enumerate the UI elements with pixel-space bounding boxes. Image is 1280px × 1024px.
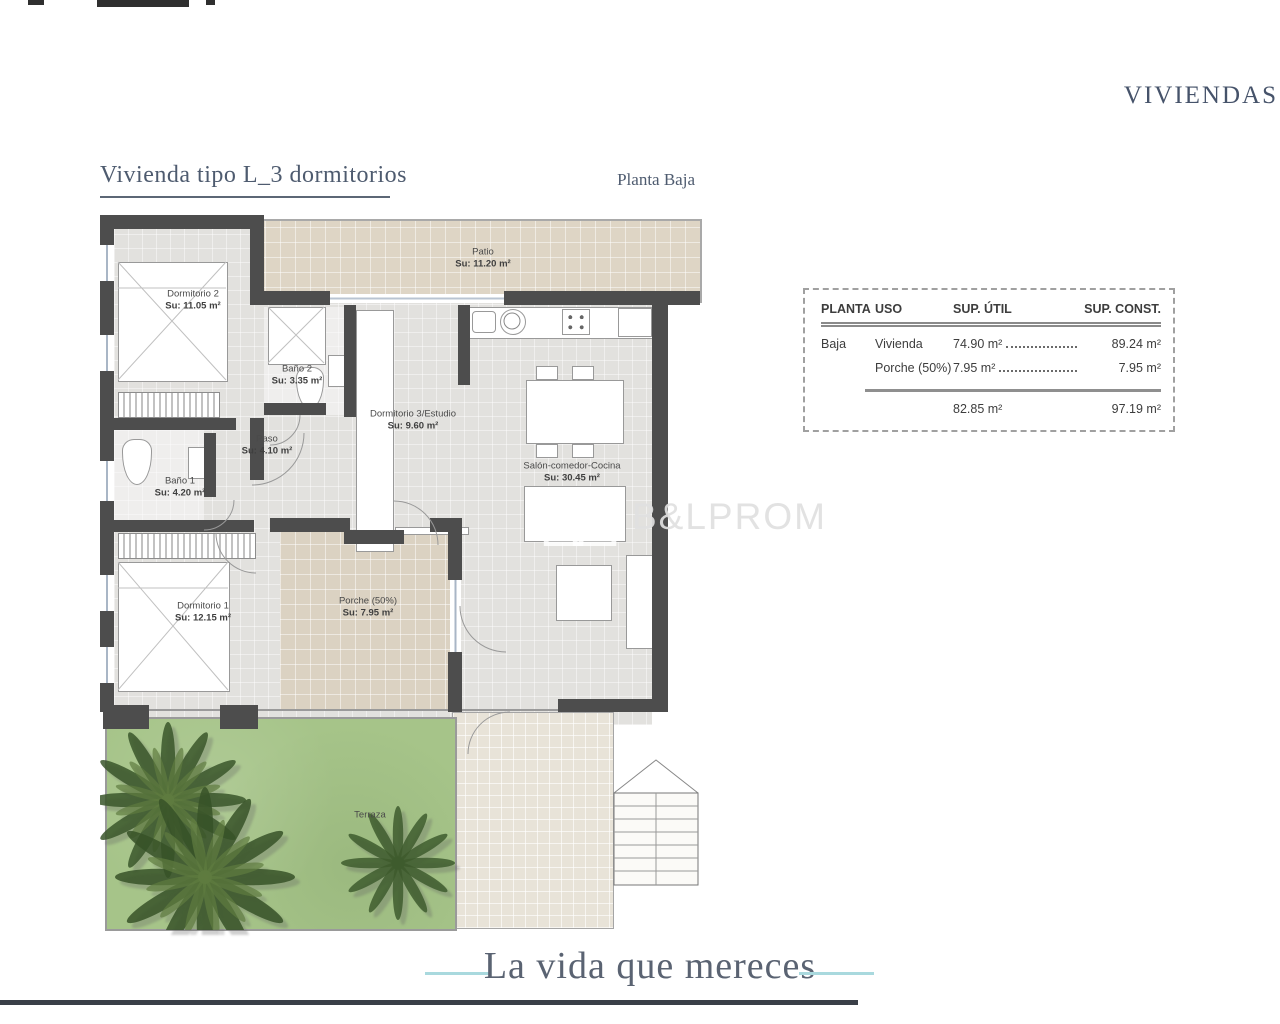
wall-segment (114, 418, 236, 430)
wall-segment (270, 518, 350, 532)
wall-segment (448, 652, 462, 712)
cell-const: 89.24 m² (1081, 337, 1161, 351)
wall-segment (250, 229, 264, 305)
wall-segment (220, 705, 258, 729)
room-label-patio: PatioSu: 11.20 m² (455, 247, 510, 270)
dotted-leader (999, 370, 1077, 372)
window (100, 647, 114, 683)
room-label-dormitorio-1: Dormitorio 1Su: 12.15 m² (175, 601, 231, 624)
shower-drawing (268, 307, 326, 365)
wall-segment (344, 305, 356, 417)
window (100, 335, 114, 371)
porch-floor (280, 530, 452, 710)
col-sup-util: SUP. ÚTIL (953, 302, 1012, 316)
wall-segment (264, 403, 326, 415)
cell-const: 7.95 m² (1081, 361, 1161, 375)
cropped-logo-fragment (206, 0, 215, 5)
wall-segment (652, 305, 668, 712)
chair-drawing (572, 444, 594, 458)
bed-drawing (118, 262, 228, 382)
window (100, 575, 114, 611)
table-header-row: PLANTA USO SUP. ÚTIL SUP. CONST. (821, 302, 1161, 327)
stairs-drawing (614, 760, 698, 885)
wall-segment (204, 433, 216, 497)
window (330, 294, 410, 303)
dotted-leader (1006, 346, 1077, 348)
table-total-separator (865, 389, 1161, 392)
window (450, 580, 461, 652)
table-row: Porche (50%) 7.95 m² 7.95 m² (821, 361, 1161, 375)
coffee-table-drawing (556, 565, 612, 621)
room-label-terraza: Terraza (354, 809, 386, 821)
header-rule (0, 120, 1280, 125)
table-total-row: 82.85 m² 97.19 m² (821, 402, 1161, 416)
cell-util: 74.90 m² (953, 337, 1002, 351)
wall-segment (114, 520, 254, 532)
wall-segment (100, 215, 264, 229)
room-label-dormitorio-2: Dormitorio 2Su: 11.05 m² (165, 289, 220, 312)
brochure-page: VIVIENDAS Vivienda tipo L_3 dormitorios … (0, 0, 1280, 1024)
window (100, 461, 114, 501)
area-summary-table: PLANTA USO SUP. ÚTIL SUP. CONST. Baja Vi… (803, 288, 1175, 432)
wall-segment (504, 291, 700, 305)
total-sup-util: 82.85 m² (953, 402, 1002, 416)
cell-util: 7.95 m² (953, 361, 995, 375)
room-label-porche: Porche (50%)Su: 7.95 m² (339, 596, 397, 619)
room-label-bano-2: Baño 2Su: 3.35 m² (272, 364, 323, 387)
cell-uso: Porche (50%) (875, 361, 953, 375)
wall-segment (458, 305, 470, 385)
col-uso: USO (875, 302, 953, 316)
room-label-salon: Salón-comedor-CocinaSu: 30.45 m² (523, 461, 620, 484)
room-label-dormitorio-3: Dormitorio 3/EstudioSu: 9.60 m² (370, 409, 456, 432)
wardrobe-drawing (118, 392, 220, 418)
tagline: La vida que mereces (420, 944, 880, 988)
total-sup-const: 97.19 m² (1081, 402, 1161, 416)
room-label-bano-1: Baño 1Su: 4.20 m² (155, 476, 206, 499)
floor-plan: PatioSu: 11.20 m² Dormitorio 2Su: 11.05 … (100, 215, 700, 930)
room-label-paso: PasoSu: 4.10 m² (242, 434, 293, 457)
title-underline (100, 196, 390, 198)
brand-wordmark: VIVIENDAS (1124, 82, 1278, 110)
sofa-drawing (524, 486, 626, 542)
wall-segment (264, 291, 330, 305)
hob-drawing (562, 309, 590, 335)
window (404, 294, 504, 303)
footer-rule (0, 1000, 858, 1005)
wardrobe-drawing (118, 533, 256, 559)
tv-unit-drawing (626, 555, 654, 649)
cell-planta: Baja (821, 337, 875, 351)
wall-segment (448, 518, 462, 580)
tagline-dash-right (799, 972, 874, 975)
rear-terrace-tiles (452, 712, 614, 929)
table-row: Baja Vivienda 74.90 m² 89.24 m² (821, 337, 1161, 351)
page-title: Vivienda tipo L_3 dormitorios (100, 162, 407, 189)
plot-boundary-line (114, 709, 558, 711)
cropped-logo-fragment (28, 0, 44, 5)
dining-table-drawing (526, 380, 624, 444)
wall-segment (103, 705, 149, 729)
window (100, 245, 114, 281)
col-sup-const: SUP. CONST. (1081, 302, 1161, 316)
cropped-logo-fragment (97, 0, 189, 7)
bed-drawing (118, 562, 230, 692)
garden-grass (105, 717, 457, 931)
chair-drawing (536, 366, 558, 380)
sink-drawing (472, 311, 496, 333)
fridge-drawing (618, 308, 652, 337)
wall-segment (558, 699, 668, 712)
chair-drawing (572, 366, 594, 380)
floor-label: Planta Baja (598, 170, 695, 190)
chair-drawing (536, 444, 558, 458)
sink-bowl-drawing (500, 309, 526, 335)
cell-uso: Vivienda (875, 337, 953, 351)
wall-segment (344, 530, 404, 544)
col-planta: PLANTA (821, 302, 875, 316)
